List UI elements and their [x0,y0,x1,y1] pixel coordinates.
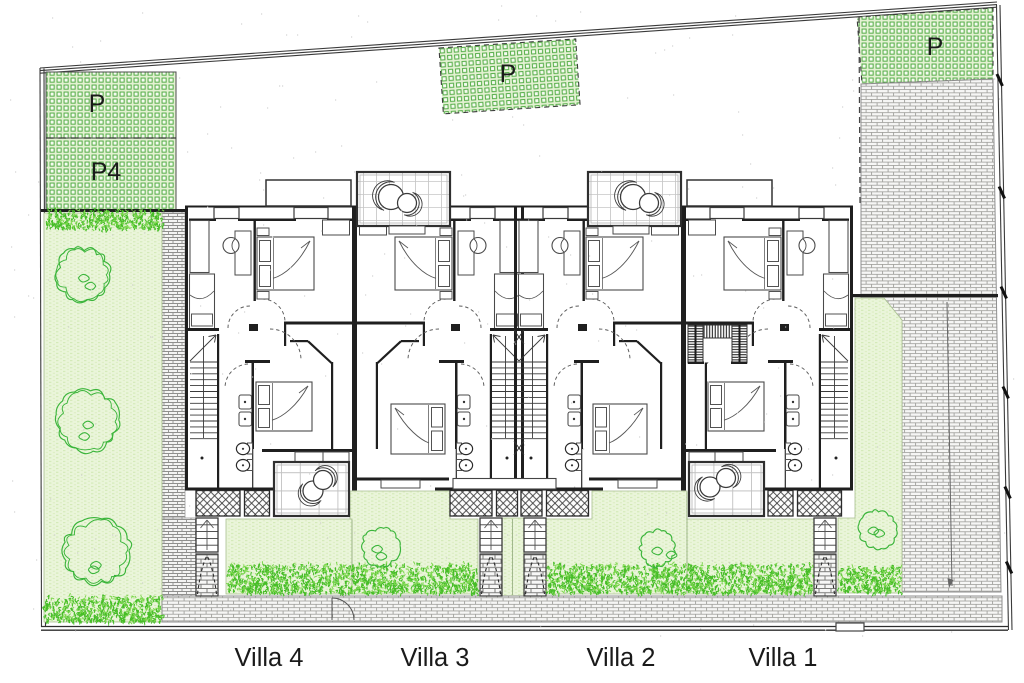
svg-text:Villa 3: Villa 3 [401,644,470,672]
svg-text:P: P [927,33,944,61]
svg-text:P: P [89,90,106,118]
svg-text:P4: P4 [91,158,122,186]
svg-text:Villa 4: Villa 4 [235,644,304,672]
svg-text:Villa 1: Villa 1 [749,644,818,672]
svg-text:P: P [500,60,517,88]
svg-text:Villa 2: Villa 2 [587,644,656,672]
